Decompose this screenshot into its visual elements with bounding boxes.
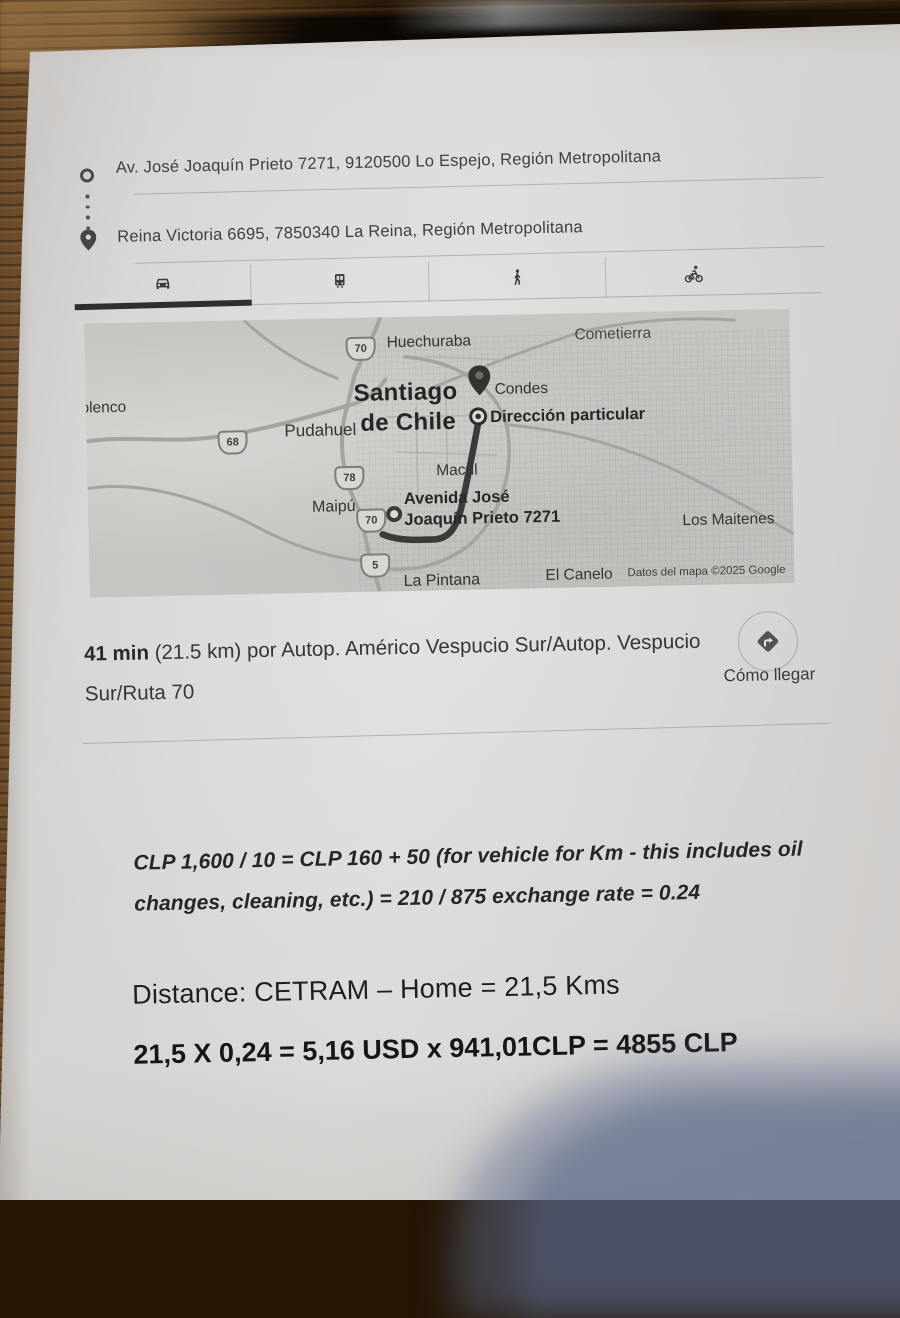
route-map[interactable]: Huechuraba Cometierra Lolenco Santiago d… — [84, 309, 795, 598]
cycling-icon — [682, 262, 706, 289]
map-label-city: de Chile — [360, 408, 456, 438]
map-label: Lolenco — [84, 399, 126, 418]
route-summary: 41 min (21.5 km) por Autop. Américo Vesp… — [84, 621, 736, 715]
walking-icon — [507, 266, 528, 293]
map-label-origin: Avenida José — [404, 488, 510, 509]
route-shield-70: 70 — [345, 337, 375, 362]
map-roads-and-route — [84, 309, 795, 598]
cost-formula-line1: CLP 1,600 / 10 = CLP 160 + 50 (for vehic… — [133, 838, 803, 876]
route-shield-5: 5 — [360, 553, 390, 578]
map-label: Condes — [494, 380, 548, 399]
map-label: El Canelo — [545, 566, 613, 585]
map-label-origin: Joaquín Prieto 7271 — [404, 508, 560, 530]
tab-transit[interactable] — [250, 261, 428, 305]
map-label: Huechuraba — [386, 333, 471, 353]
route-shield-78: 78 — [334, 466, 364, 491]
map-label: Maipú — [312, 498, 356, 517]
origin-underline — [133, 177, 823, 195]
tab-cycling[interactable] — [605, 254, 783, 298]
directions-button[interactable] — [737, 611, 798, 672]
print-content: Av. José Joaquín Prieto 7271, 9120500 Lo… — [0, 0, 900, 1209]
destination-address-field[interactable]: Reina Victoria 6695, 7850340 La Reina, R… — [117, 218, 583, 247]
map-label: La Pintana — [403, 571, 480, 591]
route-description: (21.5 km) por Autop. Américo Vespucio Su… — [149, 630, 701, 665]
map-label: Macul — [436, 461, 478, 480]
route-shield-68: 68 — [217, 430, 247, 455]
section-divider — [83, 723, 831, 744]
map-label: Los Maitenes — [682, 510, 775, 530]
destination-pin-icon — [80, 229, 97, 255]
origin-circle-icon — [80, 168, 94, 182]
printed-page: Av. José Joaquín Prieto 7271, 9120500 Lo… — [0, 0, 900, 1200]
origin-address-field[interactable]: Av. José Joaquín Prieto 7271, 9120500 Lo… — [116, 147, 662, 177]
map-label: Pudahuel — [284, 420, 356, 442]
tab-walking[interactable] — [427, 258, 605, 302]
directions-label[interactable]: Cómo llegar — [723, 664, 815, 686]
route-description-line2: Sur/Ruta 70 — [85, 680, 195, 705]
transit-icon — [330, 270, 350, 296]
cost-formula-line2: changes, cleaning, etc.) = 210 / 875 exc… — [134, 881, 700, 917]
route-shield-70: 70 — [356, 508, 386, 533]
directions-diamond-icon — [750, 623, 787, 660]
distance-line: Distance: CETRAM – Home = 21,5 Kms — [132, 970, 620, 1011]
map-label: Cometierra — [574, 325, 651, 345]
map-label-city: Santiago — [353, 378, 457, 408]
map-label-destination: Dirección particular — [490, 405, 645, 427]
car-icon — [152, 274, 174, 300]
route-duration: 41 min — [84, 641, 149, 665]
